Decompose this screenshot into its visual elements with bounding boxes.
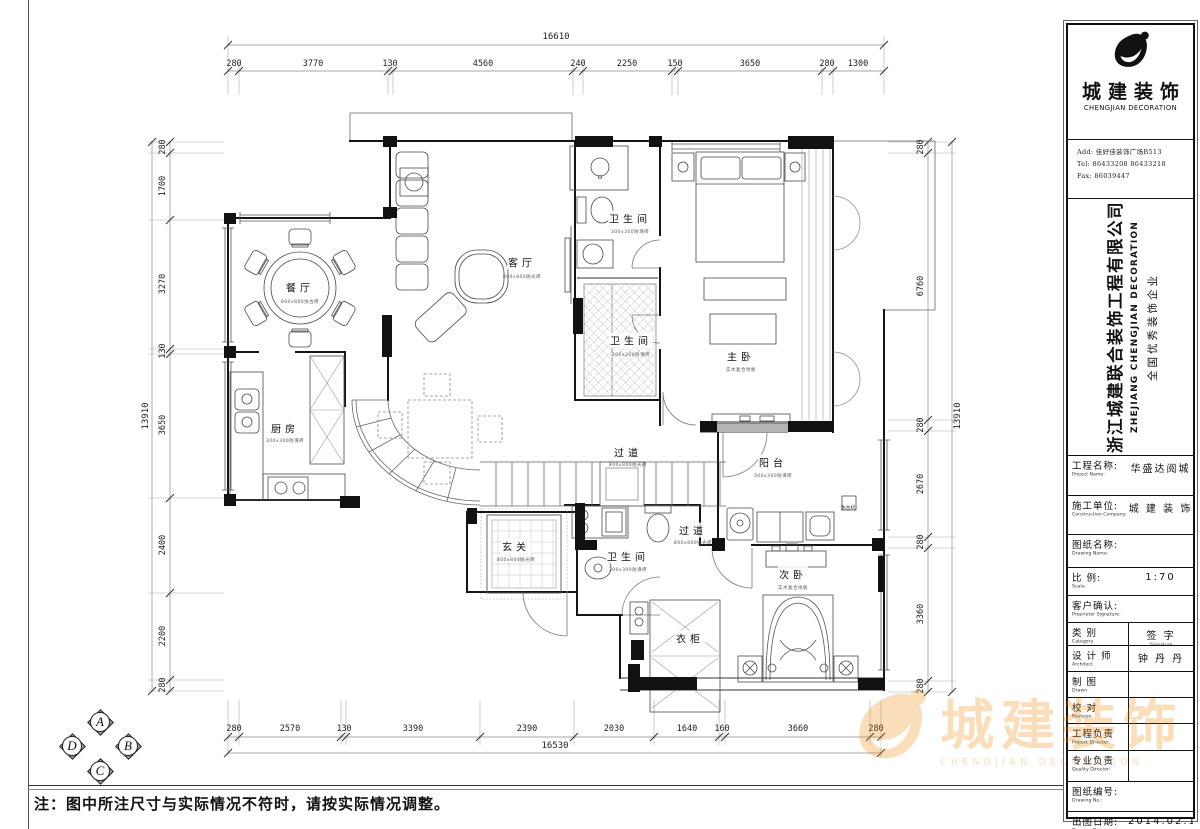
row-value: 华盛达阅城 bbox=[1131, 460, 1191, 475]
company-slogan: 全国优秀装饰企业 bbox=[1145, 201, 1160, 453]
row-label: 制 图 bbox=[1072, 674, 1128, 688]
compass-letter: D bbox=[62, 736, 82, 756]
title-block: 城建装饰 CHENGJIAN DECORATION Add: 佳好佳装饰广场B5… bbox=[1063, 20, 1198, 822]
company-logo-icon bbox=[1111, 31, 1151, 77]
company-fullname-en: ZHEJIANG CHENGJIAN DECORATION bbox=[1130, 201, 1140, 453]
row-value: 钟 丹 丹 bbox=[1138, 650, 1184, 665]
row-label-en: Drawing No.: bbox=[1072, 798, 1120, 803]
title-block-row: 专业负责 Quality Director: bbox=[1068, 750, 1193, 781]
company-address: Add: 佳好佳装饰广场B513 bbox=[1077, 146, 1193, 158]
compass-node: B bbox=[116, 734, 140, 758]
row-label-en: Category bbox=[1072, 639, 1120, 644]
row-value-en: Signature bbox=[1150, 642, 1173, 645]
title-block-row: 施工单位: Construction Company: 城 建 装 饰 bbox=[1068, 495, 1193, 534]
row-label-en: Revision bbox=[1072, 714, 1120, 719]
drawing-sheet: 1661028037701304560240225015036502801300… bbox=[0, 0, 1200, 829]
row-label: 类 别 bbox=[1072, 625, 1128, 639]
row-value: 城 建 装 饰 bbox=[1129, 500, 1193, 515]
title-block-row: 比 例: Scale: 1:70 bbox=[1068, 567, 1193, 595]
adjustment-note: 注：图中所注尺寸与实际情况不符时，请按实际情况调整。 bbox=[34, 793, 450, 814]
row-label: 出图日期: bbox=[1072, 814, 1128, 828]
compass-letter: C bbox=[90, 761, 110, 781]
title-block-row: 客户确认: Proprietor Signature: bbox=[1068, 595, 1193, 622]
title-block-row: 设 计 师 Architect 钟 丹 丹 bbox=[1068, 645, 1193, 671]
title-block-row: 校 对 Revision bbox=[1068, 697, 1193, 723]
row-label: 图纸名称: bbox=[1072, 537, 1128, 551]
row-label: 专业负责 bbox=[1072, 753, 1128, 767]
row-label: 校 对 bbox=[1072, 700, 1128, 714]
title-block-row: 图纸名称: Drawing Name: bbox=[1068, 534, 1193, 567]
row-label-en: Drawn bbox=[1072, 688, 1120, 693]
company-fullname-block: 浙江城建联合装饰工程有限公司 ZHEJIANG CHENGJIAN DECORA… bbox=[1068, 198, 1193, 455]
title-block-row: 制 图 Drawn bbox=[1068, 671, 1193, 697]
compass-node: A bbox=[88, 710, 112, 734]
title-block-row: 图纸编号: Drawing No.: bbox=[1068, 781, 1193, 811]
row-label: 设 计 师 bbox=[1072, 648, 1128, 662]
row-label: 工程负责 bbox=[1072, 726, 1128, 740]
row-label: 比 例: bbox=[1072, 570, 1128, 584]
compass-letter: A bbox=[90, 712, 110, 732]
company-contact: Add: 佳好佳装饰广场B513 Tel: 86433208 86433218 … bbox=[1068, 139, 1193, 198]
row-value: 2014.02.13 bbox=[1128, 816, 1193, 827]
row-label-en: Project Name: bbox=[1072, 472, 1120, 477]
row-label-en: Quality Director: bbox=[1072, 767, 1120, 772]
row-label-en: Drawing Name: bbox=[1072, 551, 1120, 556]
row-value: 1:70 bbox=[1145, 572, 1175, 583]
compass-node: C bbox=[88, 759, 112, 783]
row-value: 签 字 bbox=[1146, 627, 1175, 642]
company-fullname-cn: 浙江城建联合装饰工程有限公司 bbox=[1102, 201, 1126, 453]
row-label-en: Project Director: bbox=[1072, 740, 1120, 745]
row-label: 图纸编号: bbox=[1072, 784, 1128, 798]
logo-block: 城建装饰 CHENGJIAN DECORATION bbox=[1068, 25, 1193, 139]
company-tel: Tel: 86433208 86433218 bbox=[1077, 158, 1193, 170]
compass-node: D bbox=[60, 734, 84, 758]
company-name-en: CHENGJIAN DECORATION bbox=[1068, 104, 1193, 112]
company-fax: Fax: 86039447 bbox=[1077, 170, 1193, 182]
row-label: 工程名称: bbox=[1072, 458, 1128, 472]
compass-letter: B bbox=[118, 736, 138, 756]
title-block-rows: 工程名称: Project Name: 华盛达阅城 施工单位: Construc… bbox=[1068, 455, 1193, 829]
title-block-row: 工程负责 Project Director: bbox=[1068, 723, 1193, 750]
title-block-row: 类 别 Category 签 字 Signature bbox=[1068, 622, 1193, 645]
row-label-en: Scale: bbox=[1072, 584, 1120, 589]
title-block-row: 工程名称: Project Name: 华盛达阅城 bbox=[1068, 455, 1193, 495]
row-label: 客户确认: bbox=[1072, 598, 1128, 612]
row-label: 施工单位: bbox=[1072, 498, 1128, 512]
compass: A B C D bbox=[0, 0, 1200, 829]
company-name-cn: 城建装饰 bbox=[1075, 81, 1193, 103]
row-label-en: Proprietor Signature: bbox=[1072, 612, 1120, 617]
row-label-en: Construction Company: bbox=[1072, 512, 1120, 517]
title-block-row: 出图日期: Drawing Date: 2014.02.13 bbox=[1068, 811, 1193, 829]
row-label-en: Architect bbox=[1072, 662, 1120, 667]
